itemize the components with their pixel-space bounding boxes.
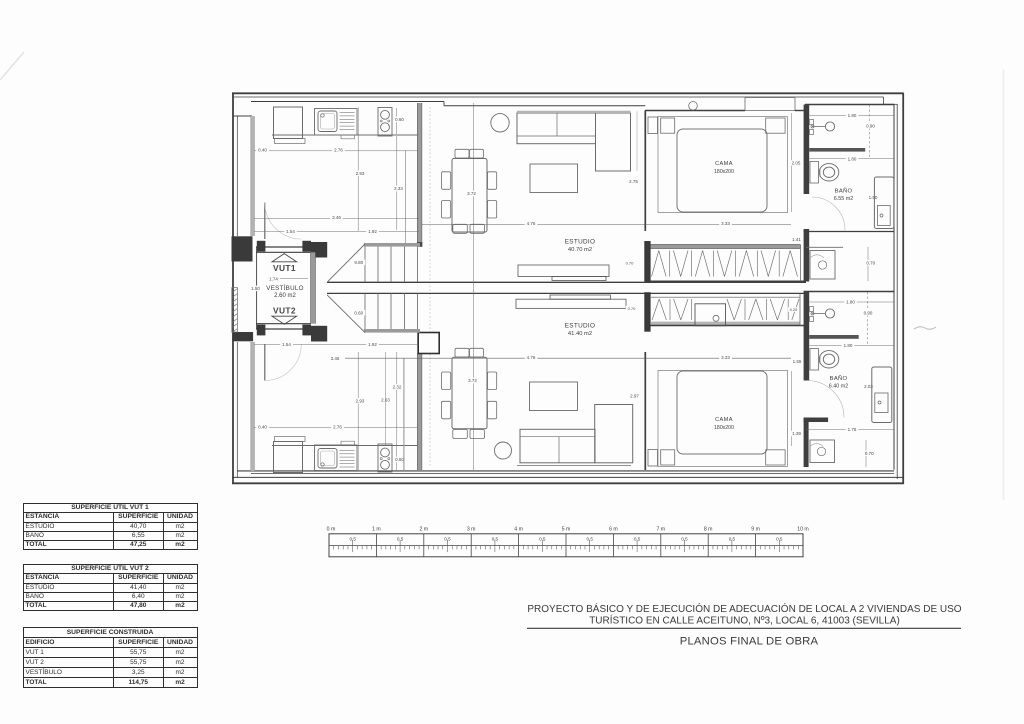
- svg-text:6.55 m2: 6.55 m2: [834, 196, 853, 202]
- svg-text:2.33: 2.33: [394, 186, 403, 191]
- svg-text:0 m: 0 m: [327, 527, 336, 533]
- svg-text:VESTÍBULO: VESTÍBULO: [266, 285, 303, 292]
- svg-text:0.70: 0.70: [865, 451, 874, 456]
- svg-text:0.70: 0.70: [866, 261, 875, 266]
- svg-text:0.70: 0.70: [626, 260, 635, 265]
- svg-text:3.72: 3.72: [468, 378, 477, 383]
- svg-text:2.32: 2.32: [393, 385, 402, 390]
- svg-text:1.50: 1.50: [869, 195, 878, 200]
- svg-text:3.33: 3.33: [721, 221, 730, 226]
- svg-text:0.90: 0.90: [866, 124, 875, 129]
- svg-text:2.93: 2.93: [356, 171, 365, 176]
- svg-text:VUT2: VUT2: [273, 305, 296, 315]
- svg-text:6 m: 6 m: [609, 527, 618, 533]
- svg-text:3.33: 3.33: [721, 355, 730, 360]
- svg-text:3.72: 3.72: [467, 191, 476, 196]
- svg-text:5 m: 5 m: [562, 527, 571, 533]
- svg-text:9 m: 9 m: [751, 527, 760, 533]
- svg-text:7 m: 7 m: [656, 527, 665, 533]
- svg-text:0.5: 0.5: [539, 537, 546, 542]
- svg-text:2.76: 2.76: [333, 425, 342, 430]
- svg-text:0.60: 0.60: [354, 310, 363, 315]
- svg-text:8 m: 8 m: [704, 527, 713, 533]
- svg-text:2.05: 2.05: [792, 161, 801, 166]
- svg-text:0.5: 0.5: [587, 537, 594, 542]
- svg-text:1.76: 1.76: [848, 427, 857, 432]
- svg-text:ESTUDIO: ESTUDIO: [565, 239, 596, 246]
- svg-text:ESTUDIO: ESTUDIO: [565, 323, 596, 330]
- svg-text:0.70: 0.70: [628, 306, 637, 311]
- svg-text:1.50: 1.50: [251, 286, 260, 291]
- svg-text:4.76: 4.76: [527, 355, 536, 360]
- svg-text:BAÑO: BAÑO: [830, 375, 848, 382]
- svg-text:2.93: 2.93: [356, 399, 365, 404]
- svg-text:PROYECTO BÁSICO Y DE EJECUCIÓN: PROYECTO BÁSICO Y DE EJECUCIÓN DE ADECUA…: [527, 602, 961, 615]
- svg-text:1.80: 1.80: [844, 343, 853, 348]
- svg-text:1.41: 1.41: [792, 237, 801, 242]
- svg-text:0.5: 0.5: [681, 537, 688, 542]
- svg-text:TURÍSTICO EN CALLE ACEITUNO, N: TURÍSTICO EN CALLE ACEITUNO, Nº3, LOCAL …: [589, 614, 900, 627]
- svg-text:0.5: 0.5: [729, 537, 736, 542]
- svg-text:0.5: 0.5: [492, 537, 499, 542]
- svg-text:1.80: 1.80: [846, 300, 855, 305]
- svg-text:1.92: 1.92: [368, 229, 377, 234]
- svg-text:41.40 m2: 41.40 m2: [568, 331, 592, 337]
- svg-text:10 m: 10 m: [797, 527, 809, 533]
- svg-text:1 m: 1 m: [372, 527, 381, 533]
- svg-text:1.80: 1.80: [848, 113, 857, 118]
- svg-text:1.54: 1.54: [286, 229, 295, 234]
- svg-text:1.74: 1.74: [269, 276, 278, 281]
- svg-text:2.60 m2: 2.60 m2: [274, 293, 296, 299]
- svg-text:6.40 m2: 6.40 m2: [829, 383, 848, 389]
- svg-text:0.60: 0.60: [395, 117, 404, 122]
- svg-text:1.55: 1.55: [793, 359, 802, 364]
- svg-text:1.39: 1.39: [792, 431, 801, 436]
- svg-text:VUT1: VUT1: [273, 263, 296, 273]
- svg-text:1.80: 1.80: [848, 156, 857, 161]
- svg-text:BAÑO: BAÑO: [835, 188, 853, 195]
- svg-text:180x200: 180x200: [714, 425, 734, 431]
- svg-text:2.76: 2.76: [334, 147, 343, 152]
- svg-text:3 m: 3 m: [467, 527, 476, 533]
- svg-text:0.5: 0.5: [444, 537, 451, 542]
- svg-text:2 m: 2 m: [419, 527, 428, 533]
- svg-text:0.90: 0.90: [864, 310, 873, 315]
- svg-text:0.5: 0.5: [776, 537, 783, 542]
- svg-text:4 m: 4 m: [514, 527, 523, 533]
- svg-text:4.76: 4.76: [527, 221, 536, 226]
- svg-text:40.70 m2: 40.70 m2: [568, 247, 592, 253]
- svg-text:9.80: 9.80: [354, 260, 363, 265]
- svg-text:1.54: 1.54: [282, 342, 291, 347]
- svg-text:0.60: 0.60: [395, 457, 404, 462]
- svg-text:2.97: 2.97: [630, 394, 639, 399]
- svg-text:CAMA: CAMA: [715, 161, 733, 167]
- svg-text:0.5: 0.5: [634, 537, 641, 542]
- svg-text:3.46: 3.46: [332, 215, 341, 220]
- svg-text:CAMA: CAMA: [715, 417, 733, 423]
- svg-text:180x200: 180x200: [714, 169, 734, 175]
- svg-text:3.46: 3.46: [331, 356, 340, 361]
- svg-text:PLANOS FINAL DE OBRA: PLANOS FINAL DE OBRA: [680, 635, 819, 647]
- svg-text:1.92: 1.92: [368, 342, 377, 347]
- svg-text:0.40: 0.40: [258, 147, 267, 152]
- svg-text:0.40: 0.40: [258, 425, 267, 430]
- svg-text:0.5: 0.5: [397, 537, 404, 542]
- svg-text:0.5: 0.5: [350, 537, 357, 542]
- svg-text:2.75: 2.75: [629, 179, 638, 184]
- svg-text:0.25: 0.25: [790, 308, 797, 312]
